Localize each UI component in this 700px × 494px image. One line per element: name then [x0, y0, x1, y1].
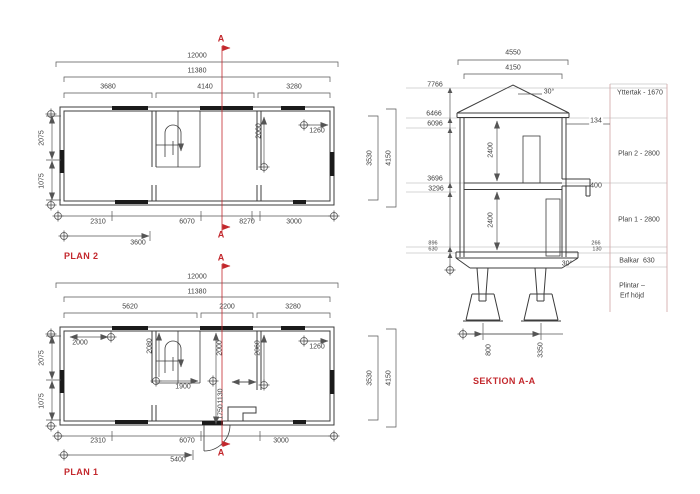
- plan2-dim-window: 1260: [309, 128, 325, 135]
- section-legend-plan2: Plan 2 - 2800: [618, 151, 660, 158]
- plan1-stair-arrow: [165, 341, 181, 373]
- section-roof-angle: 30°: [544, 89, 555, 96]
- plan1-dim-window: 1260: [309, 344, 325, 351]
- plan2-dim-right2: 4150: [386, 150, 393, 166]
- plan2-dim-closet: 2060: [256, 123, 263, 139]
- plan2-walls: [60, 107, 334, 205]
- section-legend-plintar: Plintar –: [619, 283, 645, 290]
- plan1-title: PLAN 1: [64, 468, 98, 477]
- plan2-dim-right1: 3530: [367, 150, 374, 166]
- plan2-section-marker-top: A: [218, 35, 225, 44]
- section-title: SEKTION A-A: [473, 377, 536, 386]
- section-dim-width-inner: 4150: [505, 65, 521, 72]
- plan1-windows: [60, 326, 335, 425]
- plan2-stair-arrow: [165, 125, 181, 157]
- plan2-section-marker-bottom: A: [218, 231, 225, 240]
- section-base-angle: 30°: [562, 261, 573, 268]
- plan2-dim-bot1: 2310: [90, 219, 106, 226]
- plan2-dim-left2: 1075: [39, 173, 46, 189]
- plan1-dim-hallb: 1750: [218, 404, 225, 420]
- plan2-title: PLAN 2: [64, 252, 98, 261]
- plan1-dim-seg2: 2200: [219, 304, 235, 311]
- plan1-walls: [60, 327, 334, 451]
- plan1-dim-right2: 4150: [386, 370, 393, 386]
- plan1-dim-hall: 2000: [217, 340, 224, 356]
- section-dim-eave-overhang: 134: [589, 118, 603, 125]
- plan1-dim-bot1: 2310: [90, 438, 106, 445]
- section-room-height2: 2400: [488, 142, 495, 158]
- section-level-lines: [406, 84, 667, 267]
- plan1-dim-closet: 2060: [255, 340, 262, 356]
- plan1-dim-halla: 1130: [218, 388, 225, 403]
- plan2-dim-seg3: 3280: [286, 84, 302, 91]
- section-level-ceiling1: 3296: [428, 186, 444, 193]
- section-legend-plan1: Plan 1 - 2800: [618, 217, 660, 224]
- section-footing-dim2: 3350: [538, 342, 545, 358]
- section-structure: [456, 85, 590, 321]
- plan2-dim-left1: 2075: [39, 130, 46, 146]
- section-legend-yttertak: Yttertak - 1670: [617, 90, 663, 97]
- section-level-ridge: 7766: [427, 82, 443, 89]
- section-legend-balkar: Balkar 630: [619, 258, 654, 265]
- plan1-dim-left1: 2075: [39, 350, 46, 366]
- section-room-height1: 2400: [488, 212, 495, 228]
- plan2-dim-bot2: 6070: [179, 219, 195, 226]
- plan2-dim-seg2: 4140: [197, 84, 213, 91]
- plan2-dim-lines: [46, 62, 397, 242]
- plan1-dim-bot3: 3000: [273, 438, 289, 445]
- plan1-dim-total: 12000: [187, 274, 206, 281]
- section-level-floor2: 3696: [427, 176, 443, 183]
- plan2-dim-seg1: 3680: [100, 84, 116, 91]
- plan2-dim-offset: 3600: [130, 240, 146, 247]
- section-legend-erfhojd: Erf höjd: [620, 293, 644, 300]
- plan2-windows: [60, 106, 335, 204]
- section-dim-floor-depth: 400: [590, 183, 602, 190]
- plan1-dim-right1: 3530: [367, 370, 374, 386]
- plan1-section-marker-top: A: [218, 254, 225, 263]
- section-level-beam: 630: [428, 247, 437, 253]
- plan1-dim-seg1: 5620: [122, 304, 138, 311]
- section-footing-dim1: 800: [486, 344, 493, 356]
- plan2-dim-bot3: 8270: [239, 219, 255, 226]
- plan1-dim-seg3: 3280: [285, 304, 301, 311]
- plan1-section-marker-bottom: A: [218, 449, 225, 458]
- plan1-dim-offset: 5400: [170, 457, 186, 464]
- plan1-dim-room: 2000: [72, 340, 88, 347]
- section-level-ceiling2: 6096: [427, 121, 443, 128]
- plan1-dim-bot2: 6070: [179, 438, 195, 445]
- drawing-canvas: A A 12000 11380 3680 4140 3280 2075 1075…: [0, 0, 700, 494]
- plan1-dim-left2: 1075: [39, 393, 46, 409]
- section-dim-width-outer: 4550: [505, 50, 521, 57]
- section-dim-lines: [445, 60, 611, 340]
- section-level-eave: 6466: [426, 111, 442, 118]
- section-dim-base2: 130: [592, 247, 601, 253]
- plan2-dim-bot4: 3000: [286, 219, 302, 226]
- plan1-dim-inner: 11380: [188, 289, 207, 296]
- plan2-dim-total: 12000: [187, 53, 206, 60]
- plan1-dim-stairw: 2080: [147, 338, 154, 354]
- plan1-dim-stairl: 1900: [175, 384, 191, 391]
- plan2-dim-inner: 11380: [188, 68, 207, 75]
